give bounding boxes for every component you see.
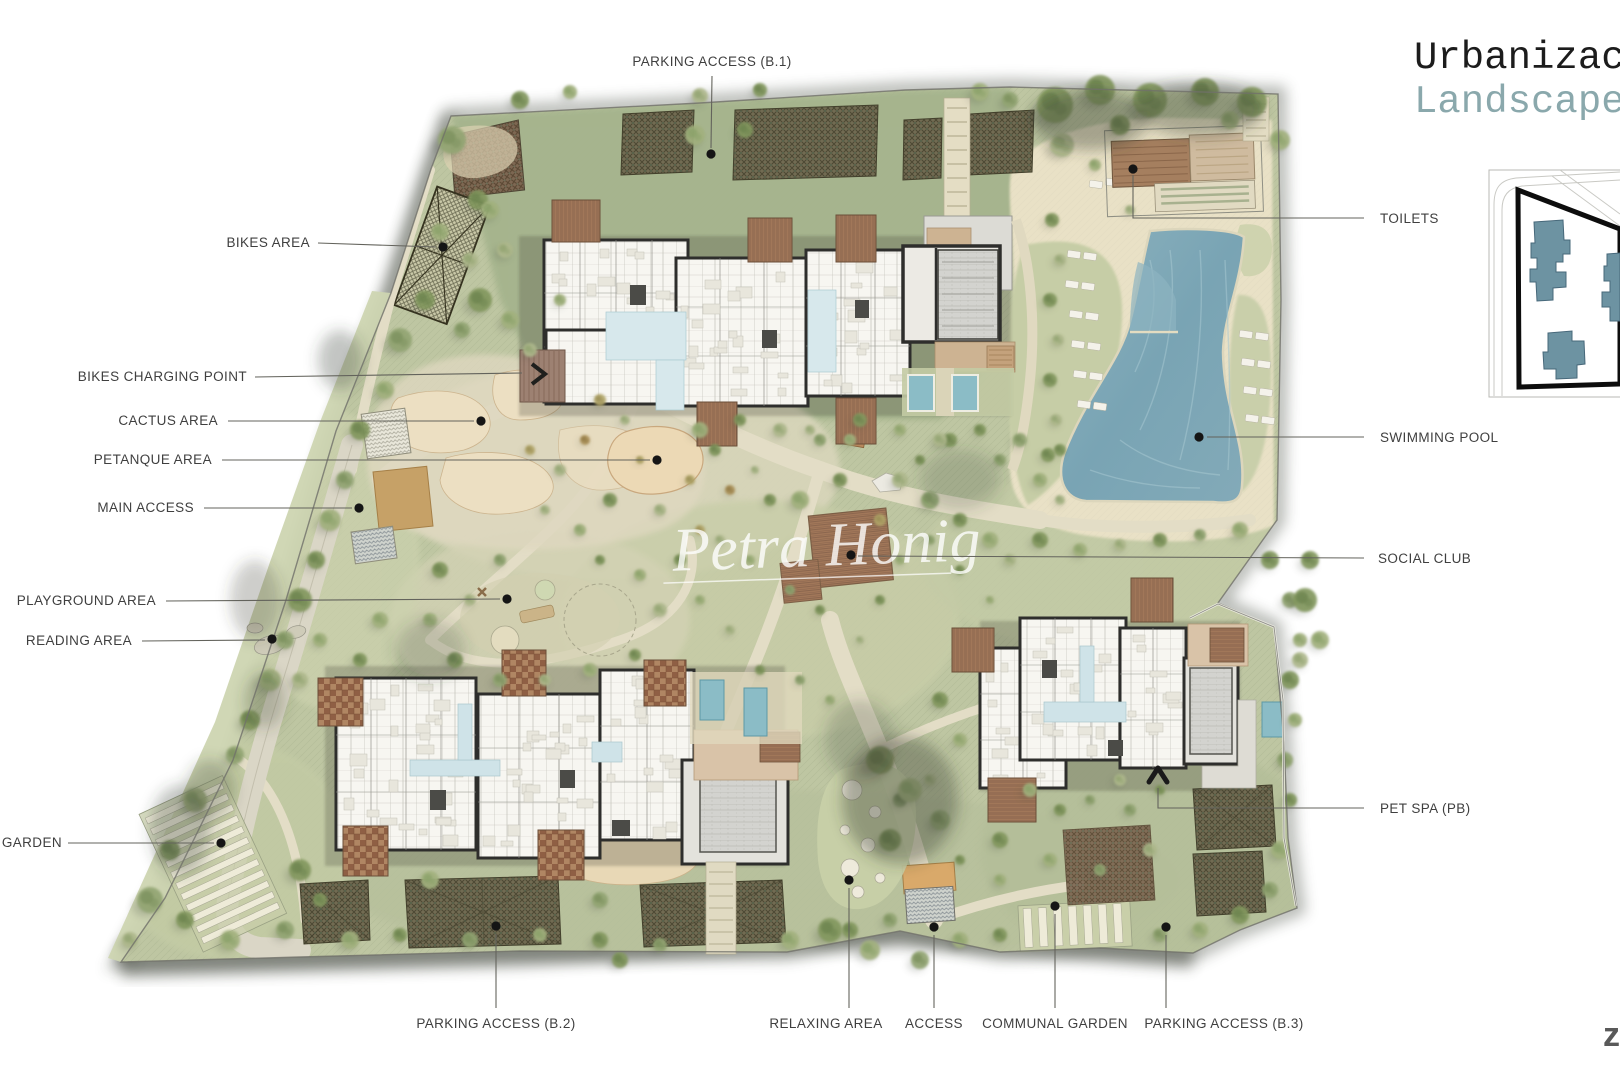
svg-text:READING AREA: READING AREA: [26, 633, 132, 648]
svg-text:MAIN ACCESS: MAIN ACCESS: [97, 500, 194, 515]
svg-text:PLAYGROUND AREA: PLAYGROUND AREA: [17, 593, 156, 608]
svg-text:PARKING ACCESS (B.1): PARKING ACCESS (B.1): [632, 54, 791, 69]
svg-text:Urbanizacion: Urbanizacion: [1414, 36, 1620, 80]
svg-text:TOILETS: TOILETS: [1380, 211, 1439, 226]
svg-text:Landscaped: Landscaped: [1414, 80, 1620, 124]
svg-text:PETANQUE AREA: PETANQUE AREA: [94, 452, 212, 467]
svg-text:CACTUS AREA: CACTUS AREA: [118, 413, 218, 428]
svg-text:AL GARDEN: AL GARDEN: [0, 835, 62, 850]
svg-text:PARKING ACCESS (B.3): PARKING ACCESS (B.3): [1144, 1016, 1303, 1031]
svg-text:PARKING ACCESS (B.2): PARKING ACCESS (B.2): [416, 1016, 575, 1031]
svg-text:SOCIAL CLUB: SOCIAL CLUB: [1378, 551, 1471, 566]
svg-text:ACCESS: ACCESS: [905, 1016, 963, 1031]
svg-text:BIKES CHARGING POINT: BIKES CHARGING POINT: [78, 369, 247, 384]
svg-text:SWIMMING POOL: SWIMMING POOL: [1380, 430, 1499, 445]
svg-text:BIKES AREA: BIKES AREA: [226, 235, 310, 250]
svg-text:RELAXING AREA: RELAXING AREA: [769, 1016, 882, 1031]
svg-text:PET SPA (PB): PET SPA (PB): [1380, 801, 1471, 816]
svg-text:z: z: [1603, 1016, 1620, 1054]
svg-text:COMMUNAL GARDEN: COMMUNAL GARDEN: [982, 1016, 1128, 1031]
